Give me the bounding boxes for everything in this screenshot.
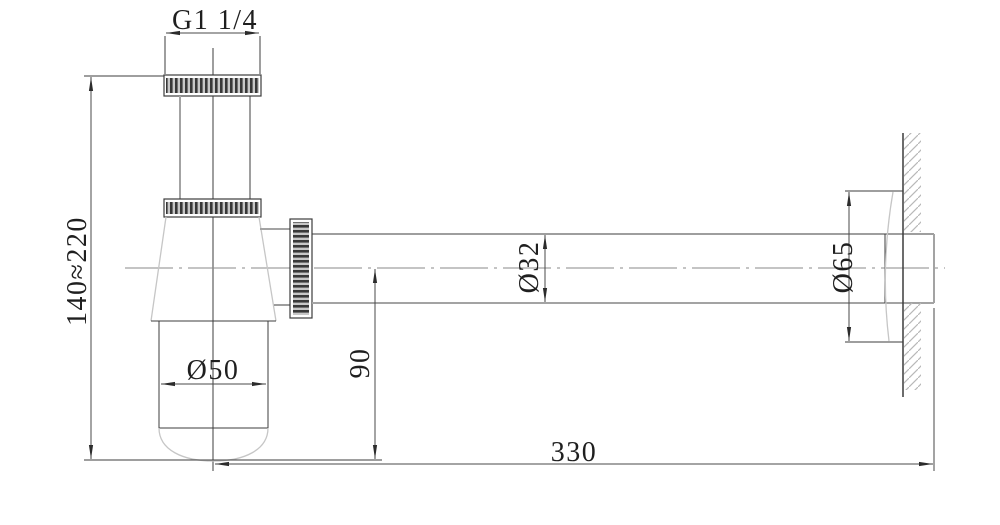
- top-locknut: [164, 75, 261, 96]
- trap-cone-left-edge: [151, 217, 166, 321]
- flange-diameter-label: Ø65: [828, 241, 859, 294]
- flange-dome-arc: [885, 192, 893, 341]
- pipe-diameter-label: Ø32: [514, 241, 545, 294]
- thread-label: G1 1/4: [172, 5, 258, 36]
- outlet-nut-knurl: [293, 222, 309, 315]
- wall-distance-label: 330: [551, 437, 598, 468]
- lower-locknut: [164, 199, 261, 217]
- lower-locknut-knurl: [166, 202, 259, 214]
- outlet-height-label: 90: [345, 348, 376, 379]
- outlet-nut: [290, 219, 312, 318]
- trap-cone-right-edge: [259, 217, 276, 321]
- wall-flange: Ø65: [828, 191, 903, 342]
- wall-hatching-upper: [904, 133, 921, 232]
- technical-drawing-canvas: G1 1/4 Ø50: [0, 0, 1000, 525]
- wall-distance-dimension: 330: [215, 308, 934, 471]
- height-range-label: 140≈220: [62, 216, 93, 326]
- pipe-diameter-dimension: Ø32: [514, 235, 545, 302]
- wall-hatching-lower: [904, 303, 921, 390]
- top-locknut-knurl: [166, 78, 259, 93]
- outlet-height-dimension: 90: [345, 269, 376, 459]
- bottle-diameter-label: Ø50: [187, 355, 240, 386]
- bottle-diameter-dimension: Ø50: [161, 355, 266, 386]
- drawing-page: G1 1/4 Ø50: [0, 0, 1000, 525]
- wall-section: [903, 133, 921, 397]
